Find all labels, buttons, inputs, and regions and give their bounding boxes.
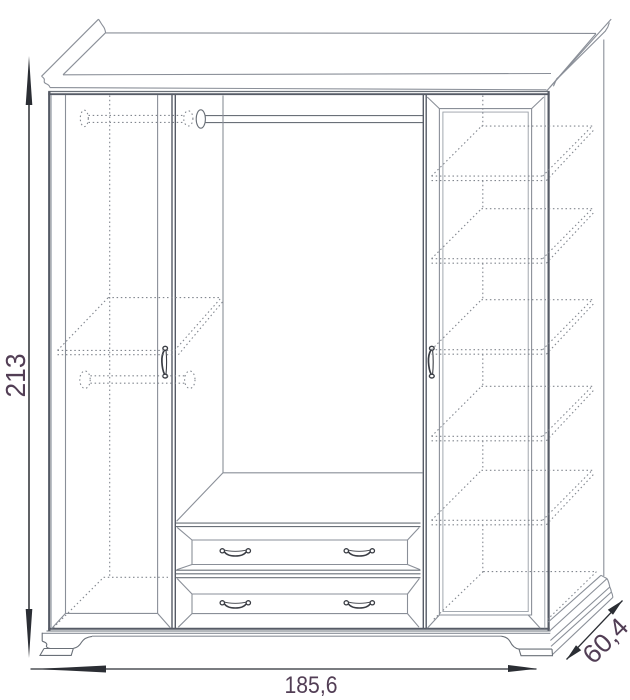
svg-text:185,6: 185,6 (285, 672, 338, 699)
svg-text:213: 213 (0, 354, 31, 398)
svg-text:60,4: 60,4 (576, 611, 630, 669)
